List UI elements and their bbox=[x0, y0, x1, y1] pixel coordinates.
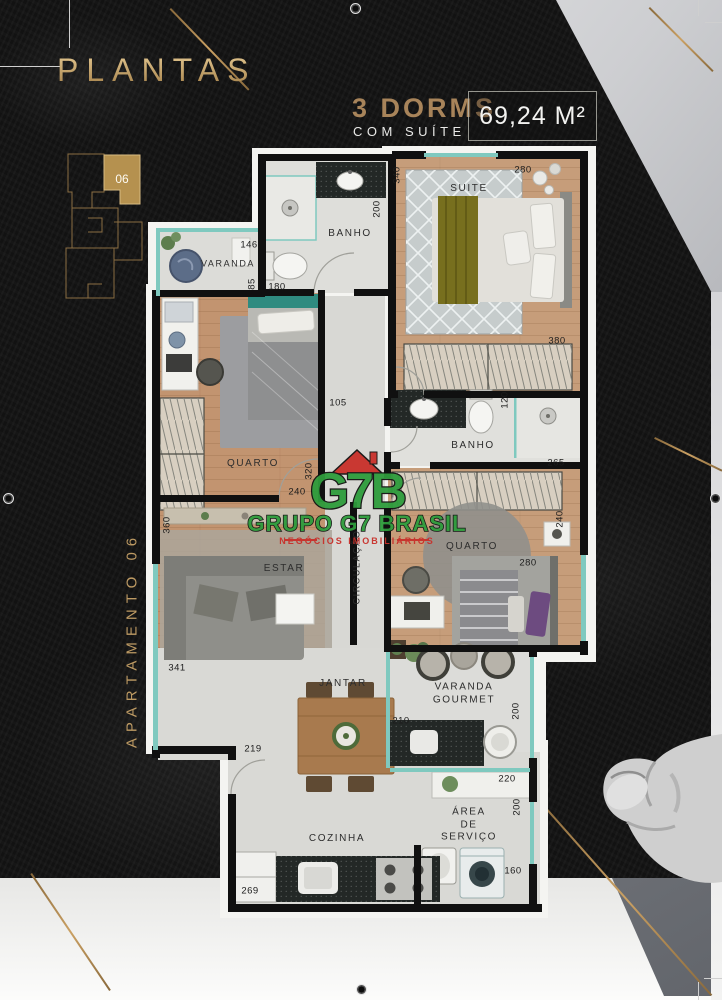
brochure-page: SUITEBANHOVARANDAQUARTOBANHOQUARTOCIRCUL… bbox=[0, 0, 722, 1000]
floor-plan bbox=[0, 0, 722, 1000]
apartment-number-label: APARTAMENTO 06 bbox=[124, 532, 141, 748]
unit-type-sublabel: COM SUÍTE bbox=[353, 124, 466, 139]
key-plan: 06 bbox=[58, 152, 166, 300]
area-value: 69,24 M² bbox=[479, 102, 586, 131]
svg-text:06: 06 bbox=[115, 172, 129, 186]
page-title: PLANTAS bbox=[57, 52, 256, 89]
area-badge: 69,24 M² bbox=[468, 91, 597, 141]
